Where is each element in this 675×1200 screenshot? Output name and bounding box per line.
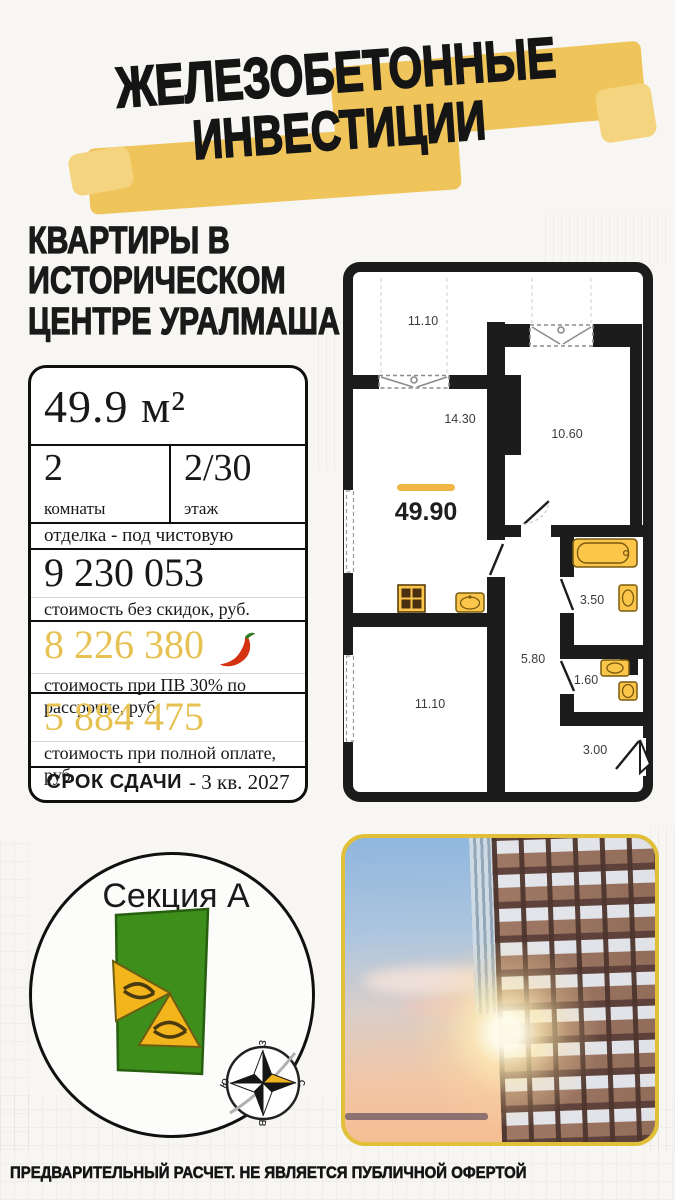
rooms-value: 2	[44, 448, 169, 490]
sketch-lines	[318, 330, 342, 470]
finishing-note: отделка - под чистовую	[31, 522, 305, 548]
sketch-lines	[0, 840, 30, 1150]
room-label-wc: 1.60	[574, 673, 598, 687]
room-label-bedroom: 10.60	[551, 427, 582, 441]
poster: ЖЕЛЕЗОБЕТОННЫЕ ИНВЕСТИЦИИ КВАРТИРЫ В ИСТ…	[0, 0, 675, 1200]
price-cash-row: 5 884 475 стоимость при полной оплате, р…	[31, 692, 305, 766]
compass-east: в	[256, 1119, 272, 1127]
section-title: Секция А	[102, 877, 250, 915]
subtitle-line-2: ИСТОРИЧЕСКОМ	[28, 261, 286, 301]
rooms-label: комнаты	[44, 499, 169, 519]
floor-value: 2/30	[184, 448, 305, 490]
room-label-entry: 3.00	[583, 743, 607, 757]
room-label-bedroom2: 11.10	[415, 697, 445, 711]
room-label-living: 14.30	[444, 412, 475, 426]
sketch-lines	[545, 214, 673, 264]
room-label-balcony: 11.10	[408, 314, 438, 328]
price-base-row: 9 230 053 стоимость без скидок, руб.	[31, 548, 305, 620]
compass-rose-icon: з с ю в	[215, 1038, 311, 1127]
rooms-cell: 2 комнаты	[31, 446, 169, 522]
stove-icon	[398, 585, 425, 612]
info-card: 49.9 м² 2 комнаты 2/30 этаж отделка - по…	[28, 365, 308, 803]
room-label-hallway: 5.80	[521, 652, 545, 666]
sun-flare	[345, 838, 655, 1142]
disclaimer: ПРЕДВАРИТЕЛЬНЫЙ РАСЧЕТ. НЕ ЯВЛЯЕТСЯ ПУБЛ…	[10, 1163, 597, 1183]
building-photo	[341, 834, 659, 1146]
room-label-bathroom: 3.50	[580, 593, 604, 607]
subtitle-line-3: ЦЕНТРЕ УРАЛМАША	[28, 302, 340, 342]
price-installment-row: 8 226 380 стоимость при ПВ 30% по рассро…	[31, 620, 305, 692]
price-base-value: 9 230 053	[31, 550, 305, 596]
area-accent-bar	[397, 484, 455, 491]
price-base-label: стоимость без скидок, руб.	[31, 598, 305, 620]
disclaimer-text: ПРЕДВАРИТЕЛЬНЫЙ РАСЧЕТ. НЕ ЯВЛЯЕТСЯ ПУБЛ…	[10, 1163, 527, 1183]
area-value: 49.9 м²	[44, 380, 186, 433]
subtitle-line-1: КВАРТИРЫ В	[28, 221, 230, 261]
price-installment-value: 8 226 380	[31, 622, 305, 672]
deadline-label: СРОК СДАЧИ	[46, 771, 182, 794]
bathtub-icon	[573, 539, 637, 567]
deadline-value: - 3 кв. 2027	[189, 770, 290, 795]
price-cash-value: 5 884 475	[31, 694, 305, 740]
chili-pepper-icon	[214, 625, 259, 675]
floor-plan: 49.90 11.10 14.30 10.60 5.80 3.50 1.60 1…	[343, 262, 653, 802]
page-title: ЖЕЛЕЗОБЕТОННЫЕ ИНВЕСТИЦИИ	[0, 21, 675, 182]
plan-total-area: 49.90	[395, 498, 458, 526]
compass-west: з	[254, 1038, 270, 1047]
floor-label: этаж	[184, 499, 305, 519]
floor-cell: 2/30 этаж	[169, 446, 305, 522]
deadline-row: СРОК СДАЧИ - 3 кв. 2027	[31, 766, 305, 797]
horizon-silhouette	[345, 1113, 488, 1120]
kitchen-sink-icon	[456, 593, 484, 612]
section-badge: Секция А з с ю	[29, 852, 315, 1138]
